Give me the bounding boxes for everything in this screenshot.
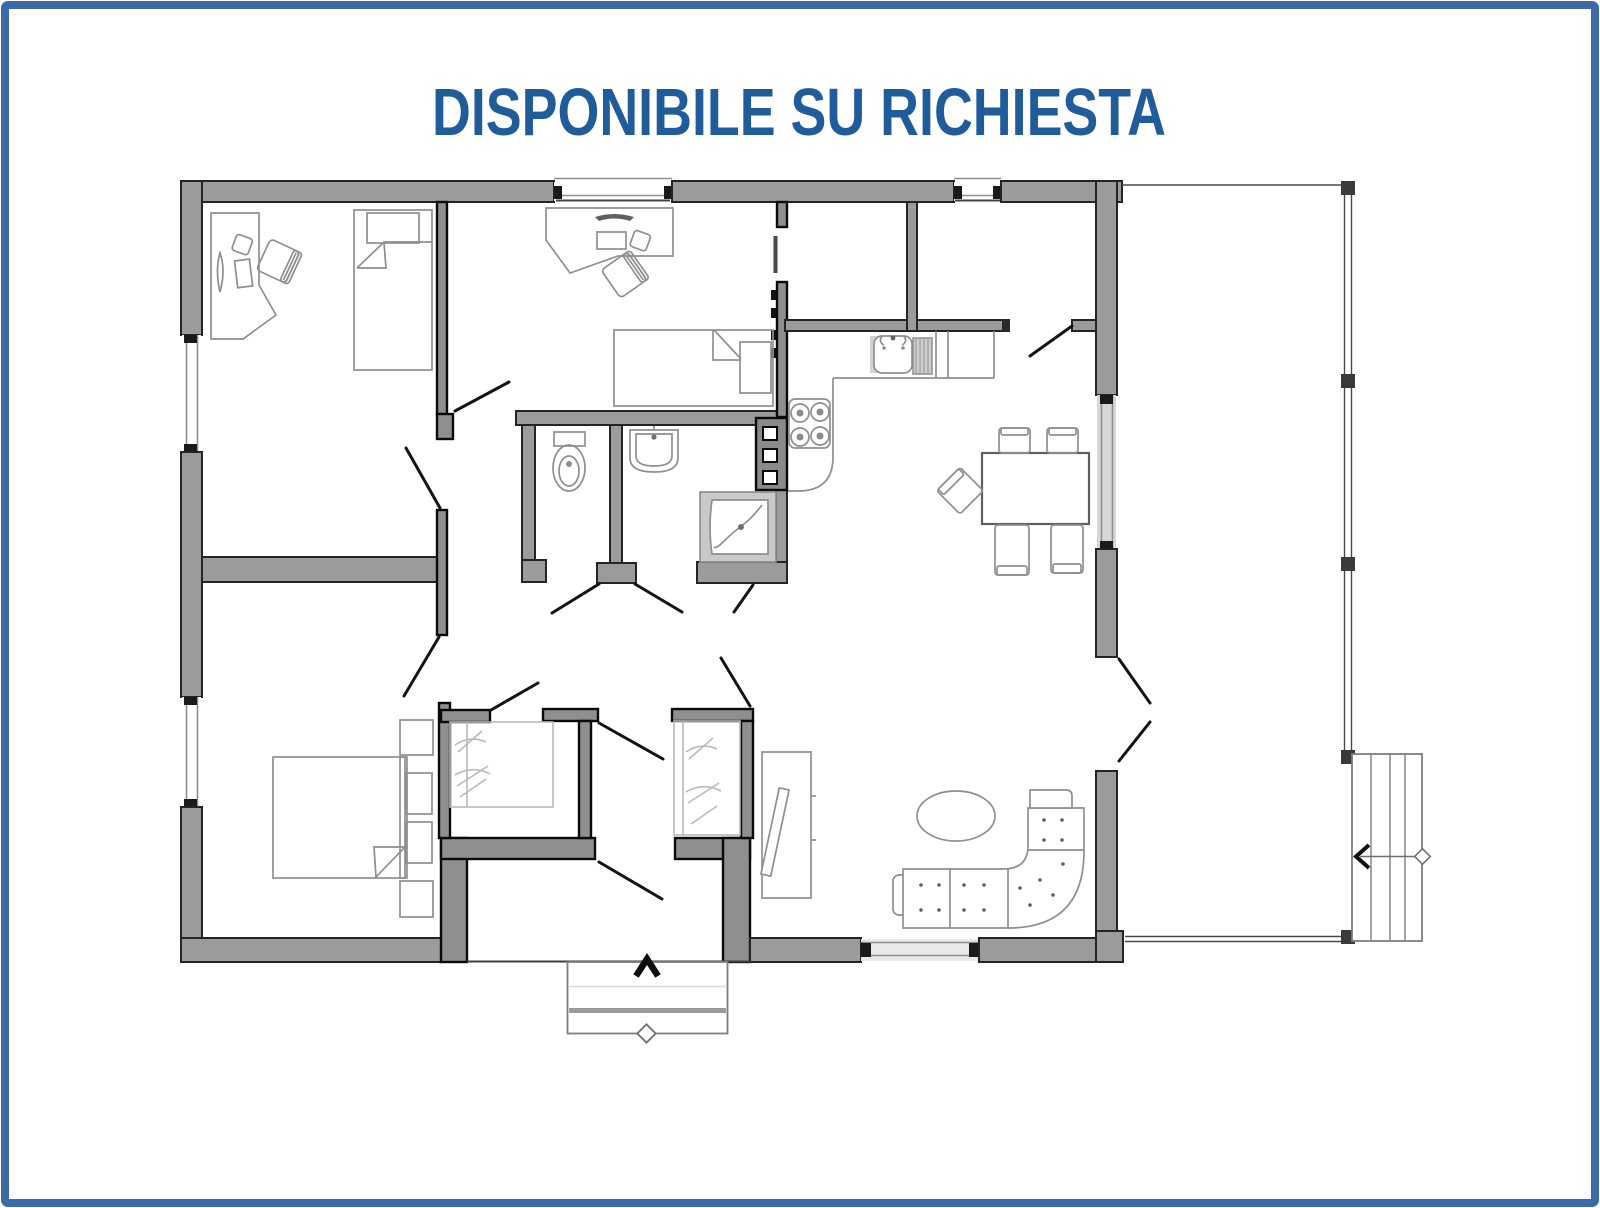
svg-text:DISPONIBILE SU RICHIESTA: DISPONIBILE SU RICHIESTA xyxy=(432,75,1166,150)
